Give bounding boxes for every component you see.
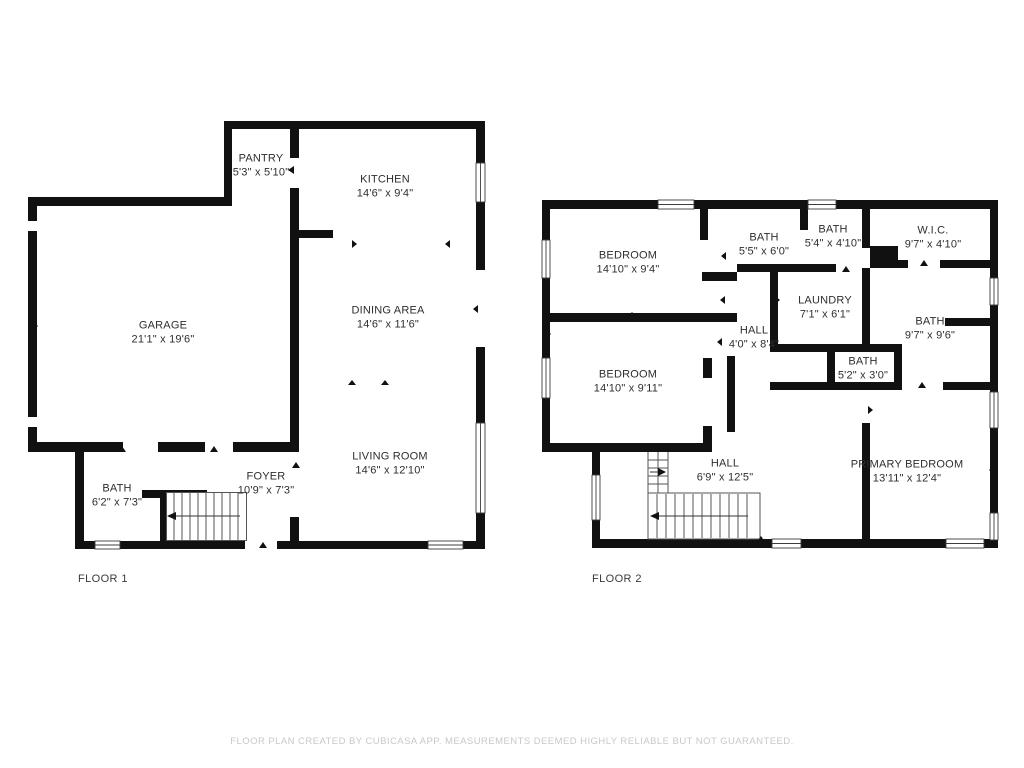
room-label-pantry: PANTRY 5'3" x 5'10" (233, 153, 290, 180)
room-label-living: LIVING ROOM 14'6" x 12'10" (352, 451, 428, 478)
room-dims: 5'4" x 4'10" (805, 237, 862, 251)
room-name: BATH (805, 224, 862, 238)
room-name: BATH (739, 232, 789, 246)
floor1-caption: FLOOR 1 (78, 573, 128, 585)
floorplan-drawing (0, 0, 1024, 768)
room-dims: 21'1" x 19'6" (132, 333, 195, 347)
room-name: FOYER (238, 471, 295, 485)
room-name: BATH (905, 316, 955, 330)
room-label-bath-52: BATH 5'2" x 3'0" (838, 356, 888, 383)
room-label-laundry: LAUNDRY 7'1" x 6'1" (798, 295, 852, 322)
room-name: HALL (729, 325, 779, 339)
room-dims: 5'2" x 3'0" (838, 369, 888, 383)
room-name: BATH (92, 483, 142, 497)
room-name: GARAGE (132, 320, 195, 334)
room-dims: 14'6" x 11'6" (351, 318, 424, 332)
room-dims: 13'11" x 12'4" (851, 472, 964, 486)
room-label-garage: GARAGE 21'1" x 19'6" (132, 320, 195, 347)
room-label-hall-lower: HALL 6'9" x 12'5" (697, 458, 754, 485)
room-name: DINING AREA (351, 305, 424, 319)
floor1-stairs (167, 493, 247, 541)
room-name: HALL (697, 458, 754, 472)
room-label-dining: DINING AREA 14'6" x 11'6" (351, 305, 424, 332)
room-label-bath-54: BATH 5'4" x 4'10" (805, 224, 862, 251)
room-label-bedroom-upper: BEDROOM 14'10" x 9'4" (597, 250, 660, 277)
room-dims: 9'7" x 9'6" (905, 329, 955, 343)
room-dims: 14'6" x 12'10" (352, 464, 428, 478)
room-dims: 7'1" x 6'1" (798, 308, 852, 322)
room-dims: 4'0" x 8'4" (729, 338, 779, 352)
room-label-hall-upper: HALL 4'0" x 8'4" (729, 325, 779, 352)
room-dims: 5'3" x 5'10" (233, 166, 290, 180)
room-label-bath-55: BATH 5'5" x 6'0" (739, 232, 789, 259)
room-dims: 14'10" x 9'11" (594, 382, 662, 396)
room-name: PANTRY (233, 153, 290, 167)
room-name: LAUNDRY (798, 295, 852, 309)
room-name: KITCHEN (357, 174, 414, 188)
room-dims: 6'2" x 7'3" (92, 496, 142, 510)
room-label-bath-97: BATH 9'7" x 9'6" (905, 316, 955, 343)
room-name: W.I.C. (905, 225, 962, 239)
room-dims: 5'5" x 6'0" (739, 245, 789, 259)
room-dims: 14'6" x 9'4" (357, 187, 414, 201)
room-name: LIVING ROOM (352, 451, 428, 465)
room-label-bedroom-lower: BEDROOM 14'10" x 9'11" (594, 369, 662, 396)
room-label-wic: W.I.C. 9'7" x 4'10" (905, 225, 962, 252)
room-dims: 10'9" x 7'3" (238, 484, 295, 498)
room-dims: 6'9" x 12'5" (697, 471, 754, 485)
floorplan-page: PANTRY 5'3" x 5'10" KITCHEN 14'6" x 9'4"… (0, 0, 1024, 768)
room-label-kitchen: KITCHEN 14'6" x 9'4" (357, 174, 414, 201)
room-name: PRIMARY BEDROOM (851, 459, 964, 473)
room-name: BATH (838, 356, 888, 370)
room-label-bath-floor1: BATH 6'2" x 7'3" (92, 483, 142, 510)
footer-disclaimer: FLOOR PLAN CREATED BY CUBICASA APP. MEAS… (0, 736, 1024, 747)
room-dims: 14'10" x 9'4" (597, 263, 660, 277)
room-label-primary-bedroom: PRIMARY BEDROOM 13'11" x 12'4" (851, 459, 964, 486)
room-name: BEDROOM (597, 250, 660, 264)
floor2-caption: FLOOR 2 (592, 573, 642, 585)
room-label-foyer: FOYER 10'9" x 7'3" (238, 471, 295, 498)
room-dims: 9'7" x 4'10" (905, 238, 962, 252)
room-name: BEDROOM (594, 369, 662, 383)
